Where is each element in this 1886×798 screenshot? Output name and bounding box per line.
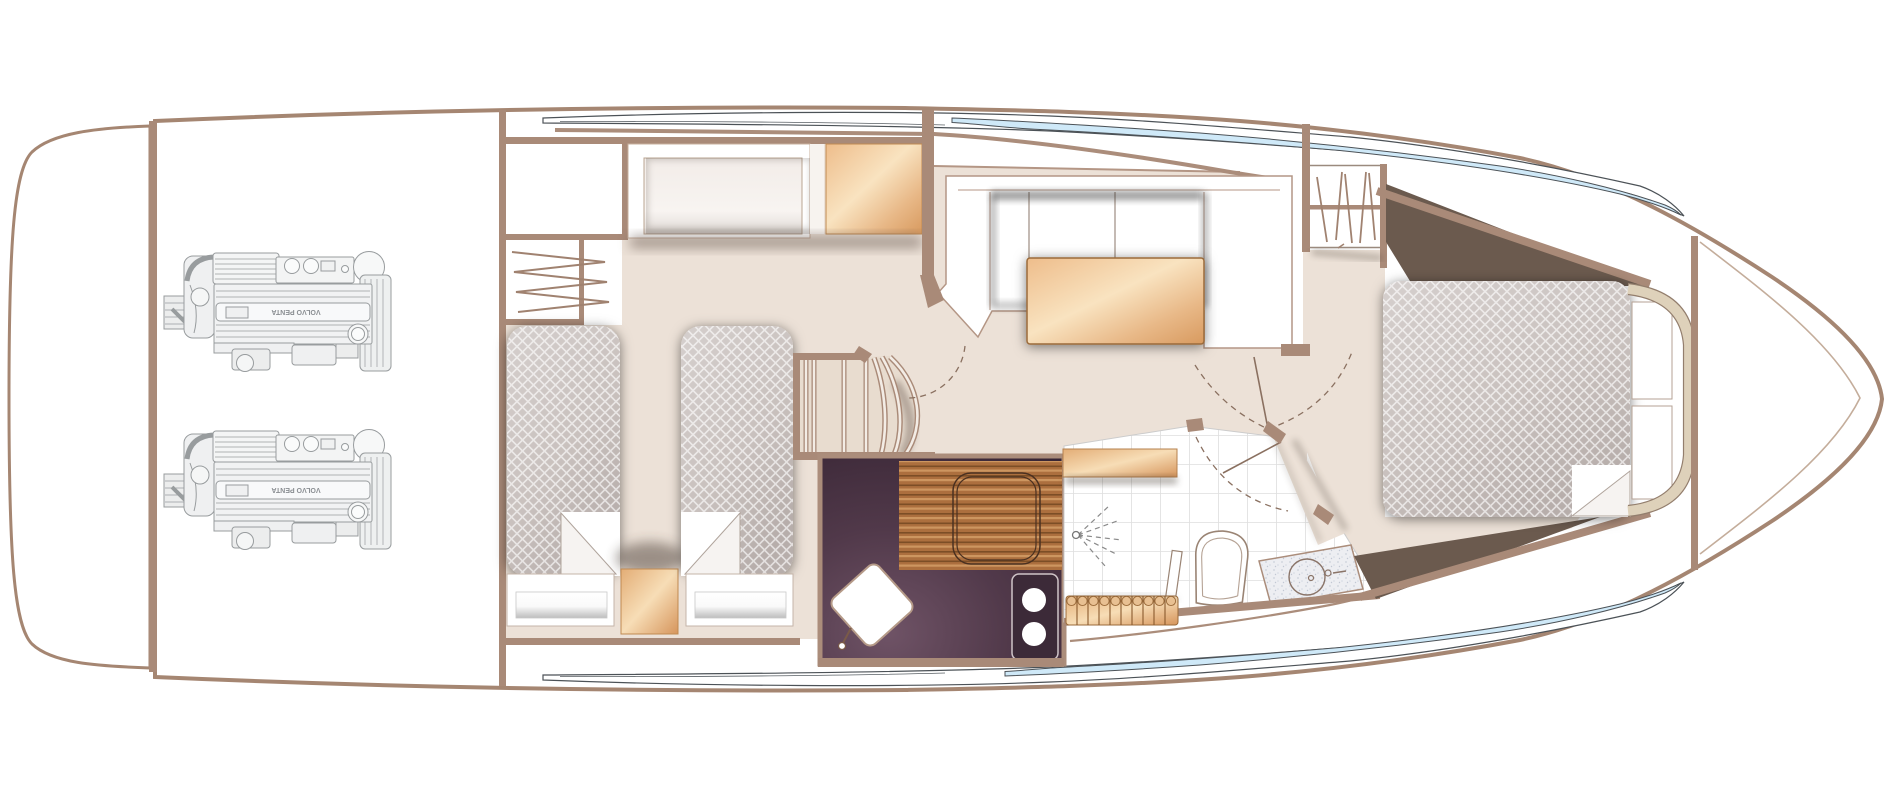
svg-text:VOLVO PENTA: VOLVO PENTA (271, 308, 320, 315)
